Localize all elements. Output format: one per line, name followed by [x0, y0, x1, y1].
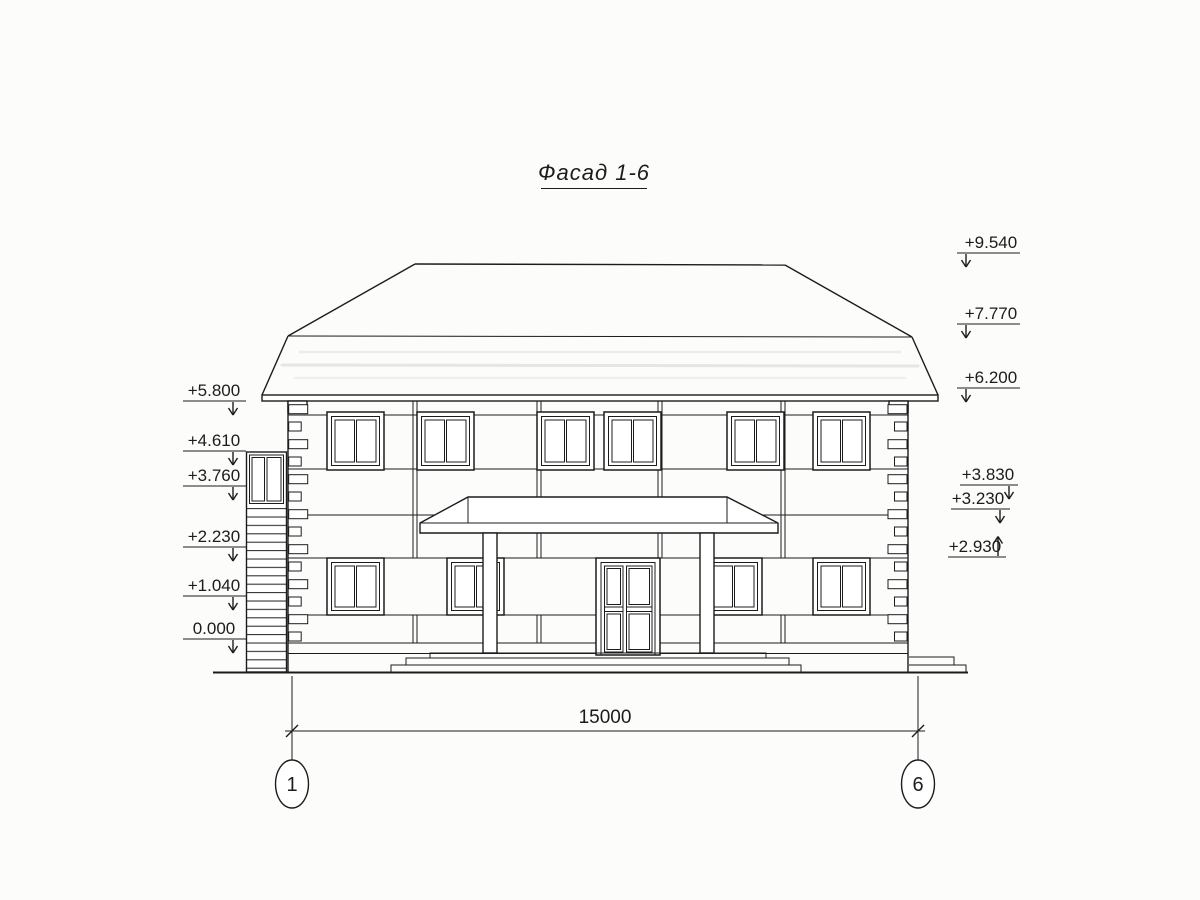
elevation-mark-label: +3.760 — [188, 466, 240, 485]
elevation-arrow-down-icon — [229, 452, 238, 465]
elevation-mark: +6.200 — [957, 368, 1020, 402]
roof — [262, 264, 938, 401]
elevation-mark-label: +5.800 — [188, 381, 240, 400]
entrance-steps — [391, 653, 801, 672]
eaves-fascia — [262, 395, 938, 401]
dimension-label: 15000 — [579, 707, 632, 728]
entrance-canopy — [420, 497, 778, 533]
brick-quoin-left — [288, 404, 309, 649]
elevation-mark-label: +3.230 — [952, 489, 1004, 508]
elevation-arrow-down-icon — [229, 548, 238, 561]
lower-window-4 — [813, 558, 870, 615]
elevation-mark: +2.230 — [183, 527, 246, 561]
elevation-mark: +3.230 — [951, 489, 1010, 523]
elevation-mark-label: +9.540 — [965, 233, 1017, 252]
elevation-mark-label: +1.040 — [188, 576, 240, 595]
elevation-arrow-down-icon — [229, 597, 238, 610]
facade-elevation-drawing: Фасад 1-6 — [0, 0, 1200, 900]
drawing-sheet: Фасад 1-6 — [0, 0, 1200, 900]
axis-bubble-right: 6 — [902, 760, 935, 808]
elevation-mark-label: +2.930 — [949, 537, 1001, 556]
elevation-mark-label: +4.610 — [188, 431, 240, 450]
canopy-body — [420, 497, 778, 533]
elevation-mark: +9.540 — [957, 233, 1020, 267]
entrance-door — [596, 558, 660, 655]
dimension-group: 15000 — [285, 676, 925, 760]
elevation-mark-label: +6.200 — [965, 368, 1017, 387]
side-steps-right — [909, 657, 966, 672]
brick-quoin-right — [887, 404, 908, 649]
canopy-column-right — [700, 533, 714, 653]
elevation-marks-left: +5.800 +4.610 +3.760 +2.230 +1.040 0.000 — [183, 381, 246, 653]
elevation-arrow-down-icon — [229, 402, 238, 415]
upper-window-6 — [813, 412, 870, 470]
canopy-column-left — [483, 533, 497, 653]
elevation-arrow-down-icon — [962, 254, 971, 267]
drawing-title: Фасад 1-6 — [538, 160, 650, 185]
elevation-mark-label: +3.830 — [962, 465, 1014, 484]
axis-label: 1 — [286, 774, 297, 796]
upper-window-2 — [417, 412, 474, 470]
elevation-arrow-down-icon — [229, 487, 238, 500]
elevation-mark: +7.770 — [957, 304, 1020, 338]
elevation-arrow-down-icon — [1005, 486, 1014, 499]
elevation-mark-label: 0.000 — [193, 619, 236, 638]
roof-upper-hips — [288, 264, 912, 337]
title-block: Фасад 1-6 — [538, 160, 650, 189]
roof-ridge — [415, 264, 785, 265]
annex-brick-courses — [247, 508, 286, 670]
elevation-marks-right: +9.540 +7.770 +6.200 +3.830 +3.230 +2.93… — [948, 233, 1020, 557]
stair-annex — [247, 452, 287, 672]
upper-window-4 — [604, 412, 661, 470]
upper-window-1 — [327, 412, 384, 470]
elevation-mark: +2.930 — [948, 537, 1006, 558]
elevation-mark: 0.000 — [183, 619, 246, 653]
elevation-mark: +4.610 — [183, 431, 246, 465]
elevation-arrow-down-icon — [996, 510, 1005, 523]
upper-window-3 — [537, 412, 594, 470]
elevation-mark: +3.760 — [183, 466, 246, 500]
elevation-arrow-down-icon — [962, 389, 971, 402]
elevation-mark: +1.040 — [183, 576, 246, 610]
elevation-arrow-down-icon — [229, 640, 238, 653]
axis-bubble-left: 1 — [276, 760, 309, 808]
roof-pitch-break-line — [288, 336, 912, 337]
scan-streak — [282, 365, 918, 366]
elevation-mark-label: +7.770 — [965, 304, 1017, 323]
elevation-arrow-down-icon — [962, 325, 971, 338]
upper-window-5 — [727, 412, 784, 470]
elevation-mark-label: +2.230 — [188, 527, 240, 546]
axis-label: 6 — [912, 774, 923, 796]
elevation-mark: +5.800 — [183, 381, 246, 415]
lower-window-1 — [327, 558, 384, 615]
